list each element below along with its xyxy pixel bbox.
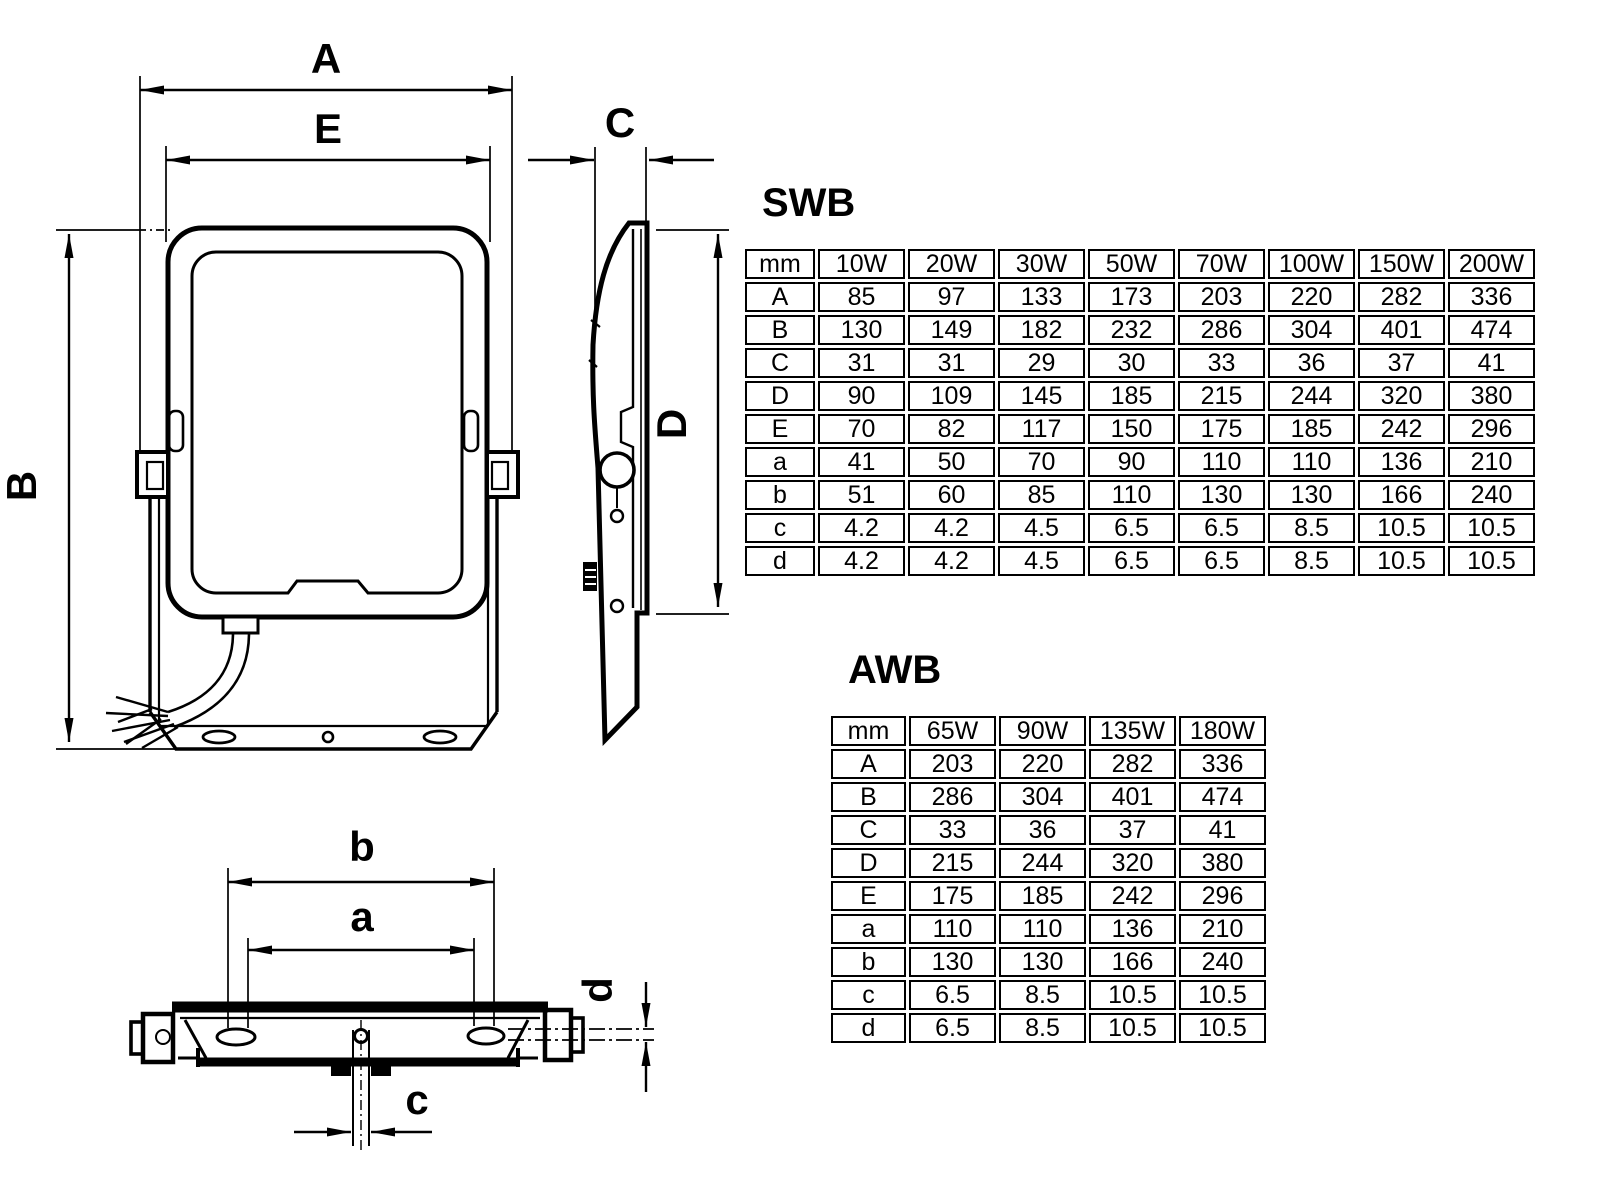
value-cell: 60 — [908, 480, 995, 510]
value-cell: 244 — [1268, 381, 1355, 411]
value-cell: 97 — [908, 282, 995, 312]
value-cell: 6.5 — [1178, 513, 1265, 543]
value-cell: 286 — [909, 782, 996, 812]
table-row: C3131293033363741 — [745, 348, 1535, 378]
dimension-label-cell: E — [831, 881, 906, 911]
value-cell: 90 — [818, 381, 905, 411]
value-cell: 282 — [1089, 749, 1176, 779]
dim-label-B: B — [0, 471, 45, 501]
value-cell: 31 — [818, 348, 905, 378]
header-row: mm10W20W30W50W70W100W150W200W — [745, 249, 1535, 279]
value-cell: 110 — [909, 914, 996, 944]
value-cell: 336 — [1448, 282, 1535, 312]
value-cell: 6.5 — [1088, 546, 1175, 576]
value-cell: 185 — [1268, 414, 1355, 444]
cable-gland — [223, 617, 258, 633]
value-cell: 136 — [1358, 447, 1445, 477]
value-cell: 240 — [1448, 480, 1535, 510]
wattage-header-cell: 50W — [1088, 249, 1175, 279]
value-cell: 8.5 — [999, 1013, 1086, 1043]
dim-label-b: b — [349, 823, 375, 870]
dim-label-a: a — [350, 893, 374, 940]
value-cell: 474 — [1448, 315, 1535, 345]
value-cell: 4.2 — [818, 546, 905, 576]
value-cell: 6.5 — [1088, 513, 1175, 543]
dim-label-E: E — [314, 105, 342, 152]
value-cell: 85 — [998, 480, 1085, 510]
dim-label-D: D — [648, 409, 695, 439]
value-cell: 6.5 — [1178, 546, 1265, 576]
value-cell: 110 — [1088, 480, 1175, 510]
table-row: b130130166240 — [831, 947, 1266, 977]
wattage-header-cell: 65W — [909, 716, 996, 746]
value-cell: 117 — [998, 414, 1085, 444]
dimension-label-cell: D — [831, 848, 906, 878]
value-cell: 242 — [1089, 881, 1176, 911]
dimension-label-cell: c — [831, 980, 906, 1010]
bracket-ear-right-notch — [492, 462, 508, 489]
wattage-header-cell: 180W — [1179, 716, 1266, 746]
mounting-slot-right — [424, 731, 456, 743]
locking-screw-hole — [611, 510, 623, 522]
end-cap-right — [545, 1010, 571, 1060]
value-cell: 110 — [1178, 447, 1265, 477]
wattage-header-cell: 10W — [818, 249, 905, 279]
value-cell: 242 — [1358, 414, 1445, 444]
dimension-label-cell: A — [831, 749, 906, 779]
value-cell: 380 — [1179, 848, 1266, 878]
value-cell: 110 — [999, 914, 1086, 944]
table-row: D215244320380 — [831, 848, 1266, 878]
wattage-header-cell: 90W — [999, 716, 1086, 746]
value-cell: 6.5 — [909, 980, 996, 1010]
value-cell: 10.5 — [1448, 546, 1535, 576]
value-cell: 10.5 — [1089, 1013, 1176, 1043]
value-cell: 149 — [908, 315, 995, 345]
dimension-label-cell: C — [745, 348, 815, 378]
dim-label-A: A — [311, 35, 341, 82]
header-row: mm65W90W135W180W — [831, 716, 1266, 746]
table-row: c6.58.510.510.5 — [831, 980, 1266, 1010]
value-cell: 220 — [999, 749, 1086, 779]
value-cell: 401 — [1358, 315, 1445, 345]
value-cell: 240 — [1179, 947, 1266, 977]
value-cell: 296 — [1448, 414, 1535, 444]
lower-screw-hole — [611, 600, 623, 612]
wattage-header-cell: 135W — [1089, 716, 1176, 746]
bracket-pivot — [600, 453, 634, 487]
table-row: c4.24.24.56.56.58.510.510.5 — [745, 513, 1535, 543]
wattage-header-cell: 100W — [1268, 249, 1355, 279]
value-cell: 8.5 — [1268, 546, 1355, 576]
floodlight-dimension-sheet: A E B — [0, 0, 1600, 1198]
value-cell: 85 — [818, 282, 905, 312]
value-cell: 10.5 — [1448, 513, 1535, 543]
side-latch-left — [169, 411, 183, 451]
value-cell: 175 — [909, 881, 996, 911]
table-row: E7082117150175185242296 — [745, 414, 1535, 444]
value-cell: 203 — [1178, 282, 1265, 312]
wattage-header-cell: 20W — [908, 249, 995, 279]
value-cell: 8.5 — [1268, 513, 1355, 543]
value-cell: 10.5 — [1089, 980, 1176, 1010]
value-cell: 215 — [909, 848, 996, 878]
value-cell: 90 — [1088, 447, 1175, 477]
end-cap-left — [143, 1014, 173, 1062]
table-row: E175185242296 — [831, 881, 1266, 911]
dim-label-c: c — [405, 1076, 428, 1123]
value-cell: 296 — [1179, 881, 1266, 911]
side-latch-right — [464, 411, 478, 451]
mounting-slot-right — [468, 1028, 504, 1044]
swb-title: SWB — [762, 181, 1538, 226]
dimension-label-cell: D — [745, 381, 815, 411]
value-cell: 10.5 — [1358, 513, 1445, 543]
value-cell: 4.5 — [998, 546, 1085, 576]
value-cell: 31 — [908, 348, 995, 378]
table-row: B130149182232286304401474 — [745, 315, 1535, 345]
table-row: A203220282336 — [831, 749, 1266, 779]
value-cell: 320 — [1089, 848, 1176, 878]
wattage-header-cell: 150W — [1358, 249, 1445, 279]
awb-dimension-table: mm65W90W135W180WA203220282336B2863044014… — [828, 713, 1269, 1046]
value-cell: 33 — [909, 815, 996, 845]
housing-outline — [168, 228, 487, 617]
swb-section: SWB mm10W20W30W50W70W100W150W200WA859713… — [742, 181, 1538, 579]
power-cable — [106, 617, 258, 748]
dimension-label-cell: C — [831, 815, 906, 845]
value-cell: 244 — [999, 848, 1086, 878]
table-row: d6.58.510.510.5 — [831, 1013, 1266, 1043]
value-cell: 4.2 — [818, 513, 905, 543]
value-cell: 50 — [908, 447, 995, 477]
wattage-header-cell: 200W — [1448, 249, 1535, 279]
value-cell: 133 — [998, 282, 1085, 312]
value-cell: 380 — [1448, 381, 1535, 411]
table-row: C33363741 — [831, 815, 1266, 845]
dim-label-C: C — [605, 99, 635, 146]
value-cell: 136 — [1089, 914, 1176, 944]
value-cell: 33 — [1178, 348, 1265, 378]
table-row: A8597133173203220282336 — [745, 282, 1535, 312]
value-cell: 166 — [1089, 947, 1176, 977]
bottom-view: b a — [131, 823, 654, 1152]
value-cell: 10.5 — [1358, 546, 1445, 576]
value-cell: 286 — [1178, 315, 1265, 345]
value-cell: 36 — [1268, 348, 1355, 378]
lens-outline — [192, 252, 462, 593]
dimension-label-cell: d — [745, 546, 815, 576]
value-cell: 37 — [1089, 815, 1176, 845]
value-cell: 41 — [818, 447, 905, 477]
value-cell: 150 — [1088, 414, 1175, 444]
value-cell: 37 — [1358, 348, 1445, 378]
value-cell: 4.2 — [908, 546, 995, 576]
value-cell: 51 — [818, 480, 905, 510]
bracket-knuckle-outline — [621, 229, 633, 608]
value-cell: 173 — [1088, 282, 1175, 312]
value-cell: 210 — [1448, 447, 1535, 477]
value-cell: 130 — [1268, 480, 1355, 510]
value-cell: 41 — [1179, 815, 1266, 845]
value-cell: 70 — [998, 447, 1085, 477]
value-cell: 220 — [1268, 282, 1355, 312]
value-cell: 10.5 — [1179, 980, 1266, 1010]
mounting-hole-center — [323, 732, 333, 742]
swb-dimension-table: mm10W20W30W50W70W100W150W200WA8597133173… — [742, 246, 1538, 579]
value-cell: 145 — [998, 381, 1085, 411]
value-cell: 185 — [999, 881, 1086, 911]
value-cell: 175 — [1178, 414, 1265, 444]
value-cell: 210 — [1179, 914, 1266, 944]
value-cell: 8.5 — [999, 980, 1086, 1010]
dimension-label-cell: B — [745, 315, 815, 345]
dimension-label-cell: d — [831, 1013, 906, 1043]
dimension-label-cell: a — [745, 447, 815, 477]
value-cell: 109 — [908, 381, 995, 411]
value-cell: 185 — [1088, 381, 1175, 411]
value-cell: 304 — [999, 782, 1086, 812]
base-plate-section — [131, 1007, 583, 1076]
awb-section: AWB mm65W90W135W180WA203220282336B286304… — [828, 648, 1269, 1046]
table-row: a41507090110110136210 — [745, 447, 1535, 477]
value-cell: 130 — [999, 947, 1086, 977]
value-cell: 474 — [1179, 782, 1266, 812]
value-cell: 41 — [1448, 348, 1535, 378]
table-row: d4.24.24.56.56.58.510.510.5 — [745, 546, 1535, 576]
unit-header-cell: mm — [831, 716, 906, 746]
technical-drawing: A E B — [0, 0, 740, 1198]
dimension-label-cell: E — [745, 414, 815, 444]
value-cell: 166 — [1358, 480, 1445, 510]
value-cell: 30 — [1088, 348, 1175, 378]
dimension-label-cell: A — [745, 282, 815, 312]
dim-label-d: d — [574, 977, 621, 1003]
awb-title: AWB — [848, 648, 1269, 693]
bracket-ear-left-notch — [147, 462, 163, 489]
value-cell: 215 — [1178, 381, 1265, 411]
value-cell: 82 — [908, 414, 995, 444]
mounting-slot-left — [217, 1029, 255, 1045]
value-cell: 4.5 — [998, 513, 1085, 543]
dimension-label-cell: b — [745, 480, 815, 510]
dimension-label-cell: B — [831, 782, 906, 812]
table-row: a110110136210 — [831, 914, 1266, 944]
value-cell: 401 — [1089, 782, 1176, 812]
value-cell: 232 — [1088, 315, 1175, 345]
value-cell: 304 — [1268, 315, 1355, 345]
dimension-label-cell: a — [831, 914, 906, 944]
value-cell: 320 — [1358, 381, 1445, 411]
value-cell: 36 — [999, 815, 1086, 845]
value-cell: 6.5 — [909, 1013, 996, 1043]
front-view: A E B — [0, 35, 518, 749]
value-cell: 10.5 — [1179, 1013, 1266, 1043]
value-cell: 336 — [1179, 749, 1266, 779]
value-cell: 4.2 — [908, 513, 995, 543]
dimension-label-cell: c — [745, 513, 815, 543]
value-cell: 130 — [818, 315, 905, 345]
table-row: B286304401474 — [831, 782, 1266, 812]
value-cell: 282 — [1358, 282, 1445, 312]
unit-header-cell: mm — [745, 249, 815, 279]
mounting-bracket — [150, 497, 497, 749]
cable-wires — [106, 697, 178, 748]
dimension-label-cell: b — [831, 947, 906, 977]
table-row: b516085110130130166240 — [745, 480, 1535, 510]
table-row: D90109145185215244320380 — [745, 381, 1535, 411]
value-cell: 29 — [998, 348, 1085, 378]
mounting-slot-left — [203, 731, 235, 743]
value-cell: 130 — [909, 947, 996, 977]
wattage-header-cell: 30W — [998, 249, 1085, 279]
side-view: C D — [528, 99, 729, 740]
value-cell: 203 — [909, 749, 996, 779]
value-cell: 130 — [1178, 480, 1265, 510]
value-cell: 182 — [998, 315, 1085, 345]
value-cell: 70 — [818, 414, 905, 444]
wattage-header-cell: 70W — [1178, 249, 1265, 279]
value-cell: 110 — [1268, 447, 1355, 477]
